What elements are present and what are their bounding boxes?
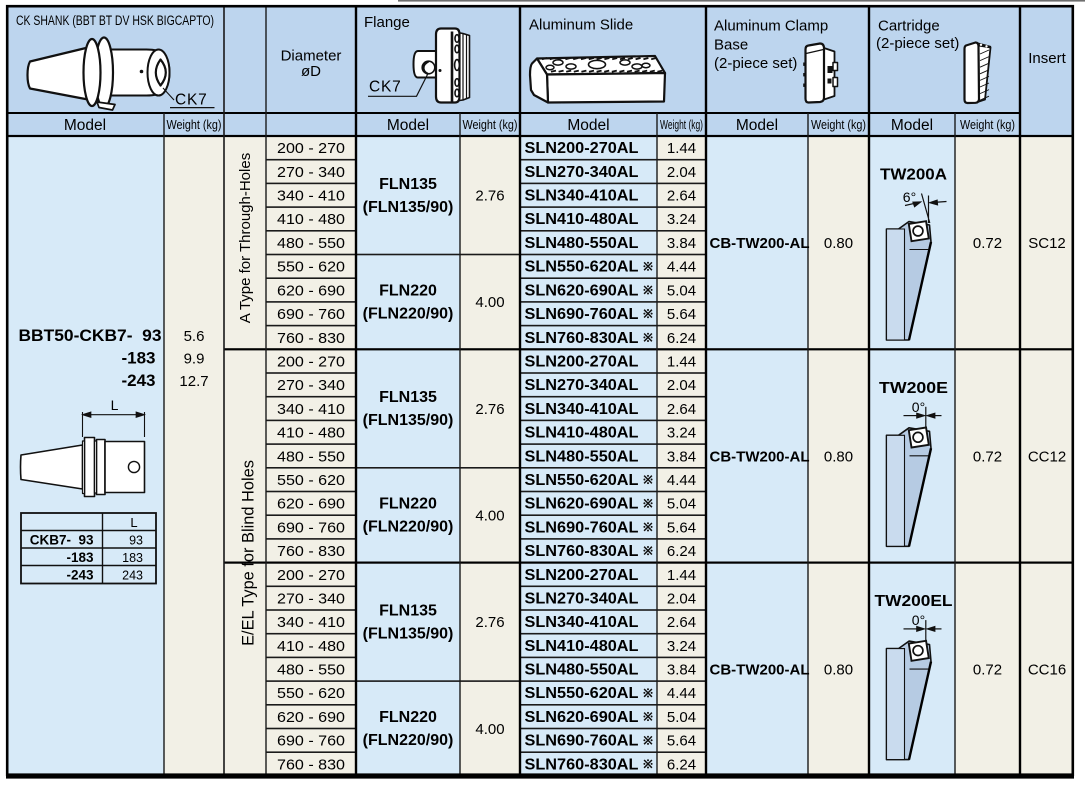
svg-text:FLN220: FLN220: [379, 709, 437, 726]
svg-text:SLN270-340AL: SLN270-340AL: [525, 377, 639, 394]
svg-text:93: 93: [129, 534, 143, 548]
svg-text:SLN550-620AL: SLN550-620AL: [525, 472, 639, 489]
svg-text:340 - 410: 340 - 410: [277, 614, 345, 631]
svg-text:FLN220: FLN220: [379, 282, 437, 299]
svg-text:270 - 340: 270 - 340: [277, 590, 345, 607]
svg-text:12.7: 12.7: [179, 373, 208, 390]
svg-text:(FLN135/90): (FLN135/90): [363, 625, 454, 642]
svg-text:(FLN135/90): (FLN135/90): [363, 199, 454, 216]
svg-text:200 - 270: 200 - 270: [277, 353, 345, 370]
svg-text:Model: Model: [64, 117, 106, 134]
svg-text:0.72: 0.72: [973, 448, 1002, 465]
svg-text:620 - 690: 620 - 690: [277, 709, 345, 726]
svg-text:(FLN220/90): (FLN220/90): [363, 732, 454, 749]
svg-text:SLN270-340AL: SLN270-340AL: [525, 164, 639, 181]
svg-text:1.44: 1.44: [667, 567, 696, 584]
svg-text:SLN690-760AL: SLN690-760AL: [525, 306, 639, 323]
svg-text:480 - 550: 480 - 550: [277, 235, 345, 252]
svg-text:Model: Model: [567, 117, 609, 134]
svg-text:CC12: CC12: [1028, 448, 1066, 465]
svg-text:Model: Model: [387, 117, 429, 134]
svg-text:9.9: 9.9: [184, 351, 205, 368]
svg-text:200 - 270: 200 - 270: [277, 140, 345, 157]
svg-text:SLN200-270AL: SLN200-270AL: [525, 140, 639, 157]
svg-text:0°: 0°: [912, 612, 925, 628]
svg-text:760 - 830: 760 - 830: [277, 543, 345, 560]
svg-text:TW200A: TW200A: [880, 167, 947, 184]
svg-text:690 - 760: 690 - 760: [277, 733, 345, 750]
svg-text:SLN620-690AL: SLN620-690AL: [525, 709, 639, 726]
svg-text:FLN135: FLN135: [379, 176, 437, 193]
svg-text:690 - 760: 690 - 760: [277, 519, 345, 536]
svg-text:(FLN220/90): (FLN220/90): [363, 519, 454, 536]
svg-text:SLN480-550AL: SLN480-550AL: [525, 662, 639, 679]
svg-text:SLN410-480AL: SLN410-480AL: [525, 638, 639, 655]
svg-text:4.00: 4.00: [475, 721, 504, 738]
svg-text:SLN340-410AL: SLN340-410AL: [525, 614, 639, 631]
svg-text:0.72: 0.72: [973, 662, 1002, 679]
svg-text:550 - 620: 550 - 620: [277, 685, 345, 702]
svg-text:SLN550-620AL: SLN550-620AL: [525, 259, 639, 276]
svg-text:CB-TW200-AL: CB-TW200-AL: [710, 448, 810, 465]
svg-text:-183: -183: [121, 349, 155, 368]
svg-text:SLN620-690AL: SLN620-690AL: [525, 496, 639, 513]
svg-text:FLN135: FLN135: [379, 602, 437, 619]
svg-text:5.64: 5.64: [667, 519, 696, 536]
svg-text:480 - 550: 480 - 550: [277, 662, 345, 679]
svg-text:1.44: 1.44: [667, 140, 696, 157]
svg-text:Weight (kg): Weight (kg): [660, 118, 703, 132]
svg-text:(2-piece set): (2-piece set): [714, 55, 797, 72]
svg-text:5.04: 5.04: [667, 282, 696, 299]
svg-text:Weight (kg): Weight (kg): [960, 118, 1015, 132]
svg-text:SLN760-830AL: SLN760-830AL: [525, 330, 639, 347]
svg-text:Weight (kg): Weight (kg): [811, 118, 866, 132]
svg-text:BBT50-CKB7- 93: BBT50-CKB7- 93: [19, 326, 162, 345]
svg-text:E/EL Type for Blind Holes: E/EL Type for Blind Holes: [240, 460, 258, 646]
svg-text:SLN410-480AL: SLN410-480AL: [525, 425, 639, 442]
svg-text:Base: Base: [714, 37, 748, 54]
svg-text:3.84: 3.84: [667, 662, 696, 679]
svg-text:0°: 0°: [912, 399, 925, 415]
svg-text:2.04: 2.04: [667, 377, 696, 394]
svg-text:5.64: 5.64: [667, 306, 696, 323]
svg-text:480 - 550: 480 - 550: [277, 448, 345, 465]
svg-text:Model: Model: [736, 117, 778, 134]
svg-text:SLN270-340AL: SLN270-340AL: [525, 590, 639, 607]
svg-text:340 - 410: 340 - 410: [277, 401, 345, 418]
svg-text:4.00: 4.00: [475, 294, 504, 311]
svg-text:TW200E: TW200E: [879, 380, 948, 397]
svg-text:Flange: Flange: [364, 14, 410, 31]
svg-text:690 - 760: 690 - 760: [277, 306, 345, 323]
svg-text:L: L: [111, 397, 119, 413]
svg-text:6.24: 6.24: [667, 543, 696, 560]
svg-text:0.80: 0.80: [824, 448, 853, 465]
svg-text:550 - 620: 550 - 620: [277, 259, 345, 276]
svg-text:3.24: 3.24: [667, 211, 696, 228]
svg-text:243: 243: [122, 569, 143, 583]
svg-text:(2-piece set): (2-piece set): [876, 35, 959, 52]
svg-text:Cartridge: Cartridge: [878, 18, 940, 35]
svg-text:2.64: 2.64: [667, 188, 696, 205]
svg-text:2.64: 2.64: [667, 614, 696, 631]
svg-text:SLN620-690AL: SLN620-690AL: [525, 282, 639, 299]
svg-text:SLN480-550AL: SLN480-550AL: [525, 448, 639, 465]
svg-text:(FLN220/90): (FLN220/90): [363, 305, 454, 322]
svg-text:Weight (kg): Weight (kg): [167, 118, 222, 132]
svg-text:Insert: Insert: [1028, 50, 1066, 67]
svg-text:SLN690-760AL: SLN690-760AL: [525, 733, 639, 750]
svg-text:410 - 480: 410 - 480: [277, 425, 345, 442]
svg-text:0.80: 0.80: [824, 235, 853, 252]
svg-text:SLN410-480AL: SLN410-480AL: [525, 211, 639, 228]
svg-text:SLN760-830AL: SLN760-830AL: [525, 756, 639, 773]
svg-text:2.64: 2.64: [667, 401, 696, 418]
svg-text:A Type for Through-Holes: A Type for Through-Holes: [237, 153, 254, 323]
svg-text:-243: -243: [66, 568, 94, 583]
svg-text:6°: 6°: [903, 189, 916, 205]
svg-text:CK7: CK7: [369, 79, 402, 96]
svg-text:TW200EL: TW200EL: [875, 593, 953, 610]
svg-text:5.04: 5.04: [667, 496, 696, 513]
svg-text:200 - 270: 200 - 270: [277, 567, 345, 584]
svg-text:SLN480-550AL: SLN480-550AL: [525, 235, 639, 252]
svg-text:760 - 830: 760 - 830: [277, 756, 345, 773]
svg-text:FLN220: FLN220: [379, 496, 437, 513]
svg-text:3.24: 3.24: [667, 638, 696, 655]
svg-text:3.84: 3.84: [667, 235, 696, 252]
svg-text:Aluminum Slide: Aluminum Slide: [529, 17, 633, 34]
svg-text:4.44: 4.44: [667, 472, 696, 489]
svg-text:0.72: 0.72: [973, 235, 1002, 252]
svg-text:3.84: 3.84: [667, 448, 696, 465]
svg-text:Weight (kg): Weight (kg): [463, 118, 518, 132]
svg-text:0.80: 0.80: [824, 662, 853, 679]
svg-text:CC16: CC16: [1028, 662, 1066, 679]
svg-text:1.44: 1.44: [667, 353, 696, 370]
svg-text:Aluminum Clamp: Aluminum Clamp: [714, 18, 828, 35]
svg-text:2.76: 2.76: [475, 188, 504, 205]
svg-text:Diameter: Diameter: [281, 48, 342, 65]
svg-text:340 - 410: 340 - 410: [277, 188, 345, 205]
svg-text:SC12: SC12: [1028, 235, 1066, 252]
svg-text:SLN340-410AL: SLN340-410AL: [525, 188, 639, 205]
svg-text:4.44: 4.44: [667, 685, 696, 702]
svg-text:CK7: CK7: [175, 92, 208, 109]
svg-text:CKB7- 93: CKB7- 93: [30, 533, 94, 548]
svg-text:2.04: 2.04: [667, 164, 696, 181]
svg-text:-243: -243: [121, 371, 155, 390]
svg-text:410 - 480: 410 - 480: [277, 638, 345, 655]
svg-text:2.76: 2.76: [475, 401, 504, 418]
svg-text:5.04: 5.04: [667, 709, 696, 726]
svg-text:183: 183: [122, 551, 143, 565]
svg-text:CB-TW200-AL: CB-TW200-AL: [710, 235, 810, 252]
svg-text:CK SHANK (BBT BT DV HSK BIGCAP: CK SHANK (BBT BT DV HSK BIGCAPTO): [16, 13, 214, 28]
svg-text:FLN135: FLN135: [379, 389, 437, 406]
svg-text:SLN200-270AL: SLN200-270AL: [525, 567, 639, 584]
svg-text:SLN690-760AL: SLN690-760AL: [525, 519, 639, 536]
svg-text:SLN550-620AL: SLN550-620AL: [525, 685, 639, 702]
svg-text:620 - 690: 620 - 690: [277, 282, 345, 299]
svg-text:CB-TW200-AL: CB-TW200-AL: [710, 662, 810, 679]
svg-text:SLN200-270AL: SLN200-270AL: [525, 353, 639, 370]
svg-text:øD: øD: [301, 63, 321, 80]
svg-text:SLN340-410AL: SLN340-410AL: [525, 401, 639, 418]
svg-text:5.6: 5.6: [184, 328, 205, 345]
svg-text:4.44: 4.44: [667, 259, 696, 276]
svg-text:(FLN135/90): (FLN135/90): [363, 412, 454, 429]
svg-text:Model: Model: [891, 117, 933, 134]
svg-text:5.64: 5.64: [667, 733, 696, 750]
svg-text:L: L: [130, 515, 137, 530]
svg-text:4.00: 4.00: [475, 508, 504, 525]
svg-text:410 - 480: 410 - 480: [277, 211, 345, 228]
svg-text:2.76: 2.76: [475, 614, 504, 631]
svg-text:2.04: 2.04: [667, 590, 696, 607]
svg-text:-183: -183: [66, 550, 94, 565]
svg-text:760 - 830: 760 - 830: [277, 330, 345, 347]
svg-text:SLN760-830AL: SLN760-830AL: [525, 543, 639, 560]
svg-text:270 - 340: 270 - 340: [277, 164, 345, 181]
svg-text:6.24: 6.24: [667, 330, 696, 347]
svg-text:270 - 340: 270 - 340: [277, 377, 345, 394]
svg-text:6.24: 6.24: [667, 756, 696, 773]
svg-text:3.24: 3.24: [667, 425, 696, 442]
svg-text:620 - 690: 620 - 690: [277, 496, 345, 513]
svg-text:550 - 620: 550 - 620: [277, 472, 345, 489]
